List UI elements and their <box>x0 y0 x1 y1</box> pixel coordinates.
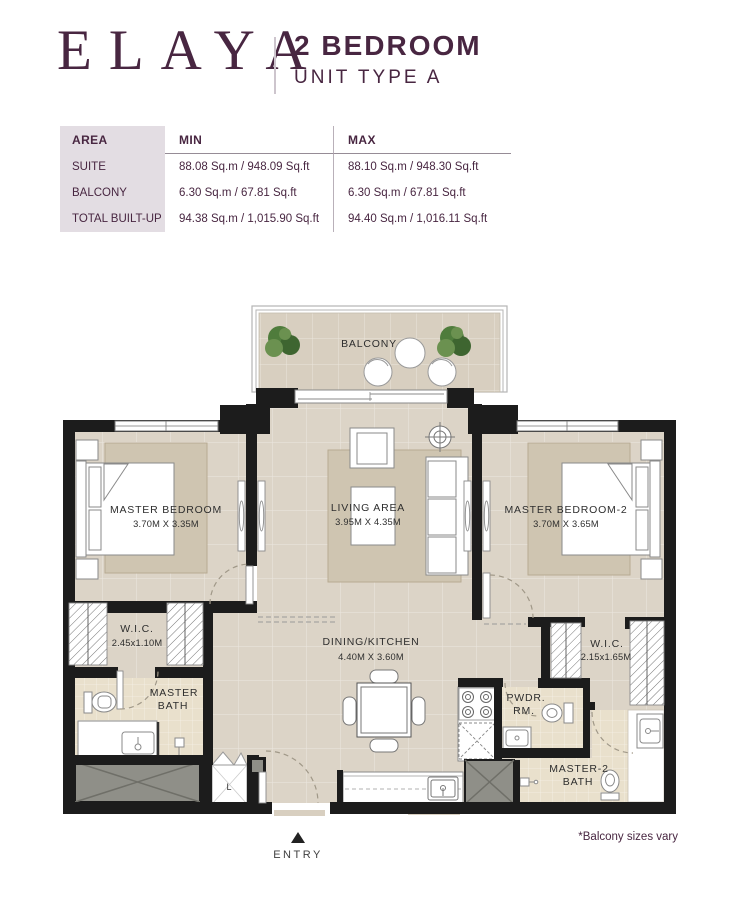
toilet-tank <box>84 692 92 713</box>
master2-bath-label1: MASTER-2 <box>549 763 609 775</box>
pillow <box>89 510 101 550</box>
master2-bath-label2: BATH <box>563 776 593 788</box>
powder-room-label2: RM. <box>513 705 535 717</box>
sofa-cushion <box>428 537 456 573</box>
pillow <box>636 467 648 507</box>
chair-icon <box>370 739 398 752</box>
door-leaf <box>483 573 490 618</box>
faucet-icon <box>135 744 141 750</box>
sofa-cushion <box>428 499 456 535</box>
toilet-bowl <box>547 709 557 718</box>
toilet-bowl <box>606 774 615 786</box>
laundry-closet: L <box>212 752 247 804</box>
bidet-spray-icon <box>175 738 184 747</box>
dining-table-top <box>361 687 407 733</box>
bed-headboard <box>76 461 86 557</box>
wic2-dims: 2.15x1.65M <box>581 652 632 662</box>
living-area-label: LIVING AREA <box>331 502 405 514</box>
balcony-area: BALCONY <box>252 306 507 392</box>
powder-room-label1: PWDR. <box>507 692 546 704</box>
pillow <box>89 467 101 507</box>
master-bedroom-label: MASTER BEDROOM <box>110 504 222 516</box>
duct <box>252 760 263 772</box>
toilet-seat <box>98 696 111 708</box>
laundry-label: L <box>226 782 231 792</box>
balcony-chair-icon <box>428 358 456 386</box>
wic1-dims: 2.45x1.10M <box>112 638 163 648</box>
brochure-page: ELAYA 2 BEDROOM UNIT TYPE A AREA MIN MAX… <box>0 0 732 900</box>
faucet-icon <box>515 736 519 740</box>
entry-arrow-icon <box>291 832 305 843</box>
floorplan: BALCONY <box>0 0 732 900</box>
sofa-cushion <box>428 461 456 497</box>
entry-marker: ENTRY <box>273 832 323 861</box>
nightstand-icon <box>76 559 98 579</box>
living-area-dims: 3.95M X 4.35M <box>335 517 401 527</box>
entry-label: ENTRY <box>273 849 323 861</box>
wic2-label: W.I.C. <box>590 638 623 650</box>
bed-headboard <box>650 461 660 557</box>
balcony-table-icon <box>395 338 425 368</box>
nightstand-icon <box>76 440 98 460</box>
chair-icon <box>370 670 398 683</box>
chair-icon <box>343 697 356 725</box>
door-leaf <box>246 566 253 604</box>
sliding-door-icon <box>295 390 447 403</box>
balcony-footnote: *Balcony sizes vary <box>578 831 678 843</box>
service-shaft <box>75 762 200 802</box>
nightstand-icon <box>641 440 662 460</box>
dining-kitchen-dims: 4.40M X 3.60M <box>338 652 404 662</box>
faucet-icon <box>646 729 651 734</box>
toilet-tank <box>564 703 573 723</box>
master-bath-label1: MASTER <box>150 687 199 699</box>
armchair-cushion <box>357 433 387 464</box>
coffee-table-icon <box>351 487 395 545</box>
wic1-label: W.I.C. <box>120 623 153 635</box>
chair-icon <box>412 697 425 725</box>
dining-kitchen-label: DINING/KITCHEN <box>323 636 420 648</box>
kitchen-sink-icon <box>428 777 458 800</box>
balcony-label: BALCONY <box>341 338 397 350</box>
window-icon <box>115 421 218 431</box>
nightstand-icon <box>641 559 662 579</box>
pillow <box>636 510 648 550</box>
balcony-chair-icon <box>364 358 392 386</box>
entry-threshold <box>274 810 325 816</box>
master-bedroom2-label: MASTER BEDROOM-2 <box>504 504 627 516</box>
door-leaf <box>117 671 123 709</box>
master-bedroom-dims: 3.70M X 3.35M <box>133 519 199 529</box>
door-leaf <box>259 772 266 803</box>
master-bath-label2: BATH <box>158 700 188 712</box>
toilet-tank <box>601 793 619 800</box>
master-bedroom2-dims: 3.70M X 3.65M <box>533 519 599 529</box>
service-shaft <box>465 760 514 804</box>
window-icon <box>517 421 618 431</box>
shower-valve-icon <box>520 778 529 786</box>
